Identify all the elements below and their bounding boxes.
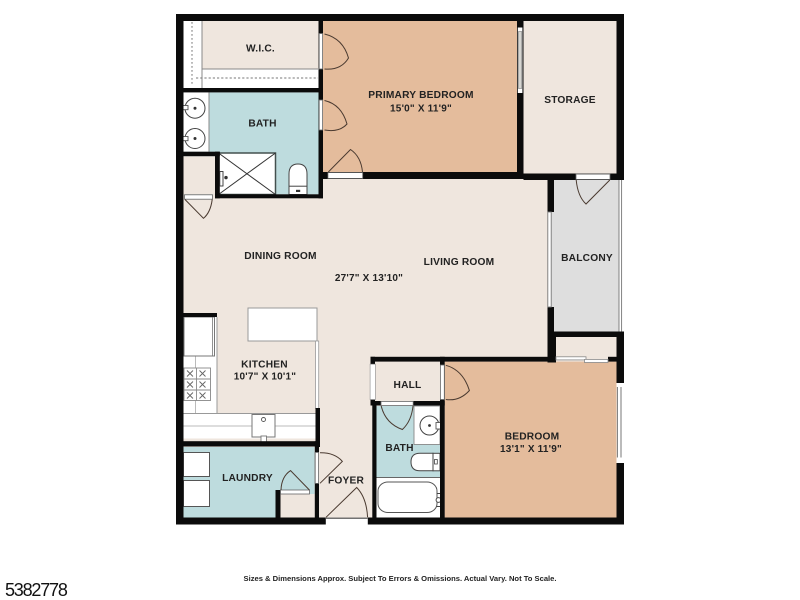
svg-text:15'0" X 11'9": 15'0" X 11'9" — [390, 104, 452, 115]
svg-text:BEDROOM: BEDROOM — [505, 432, 560, 443]
svg-text:KITCHEN: KITCHEN — [241, 360, 288, 371]
svg-text:W.I.C.: W.I.C. — [246, 44, 275, 55]
svg-text:13'1" X 11'9": 13'1" X 11'9" — [500, 444, 562, 455]
svg-text:HALL: HALL — [394, 380, 422, 391]
svg-text:LAUNDRY: LAUNDRY — [222, 473, 273, 484]
svg-text:FOYER: FOYER — [328, 476, 365, 487]
svg-text:BATH: BATH — [248, 119, 276, 130]
svg-text:STORAGE: STORAGE — [544, 95, 596, 106]
svg-text:DINING ROOM: DINING ROOM — [244, 251, 316, 262]
svg-text:10'7" X 10'1": 10'7" X 10'1" — [234, 372, 296, 383]
svg-text:BATH: BATH — [385, 443, 413, 454]
svg-text:LIVING ROOM: LIVING ROOM — [424, 257, 495, 268]
svg-text:Sizes & Dimensions Approx. Sub: Sizes & Dimensions Approx. Subject To Er… — [244, 574, 557, 583]
svg-text:5382778: 5382778 — [5, 580, 68, 600]
svg-text:PRIMARY BEDROOM: PRIMARY BEDROOM — [368, 90, 473, 101]
svg-text:27'7" X 13'10": 27'7" X 13'10" — [335, 273, 403, 284]
svg-text:BALCONY: BALCONY — [561, 253, 613, 264]
